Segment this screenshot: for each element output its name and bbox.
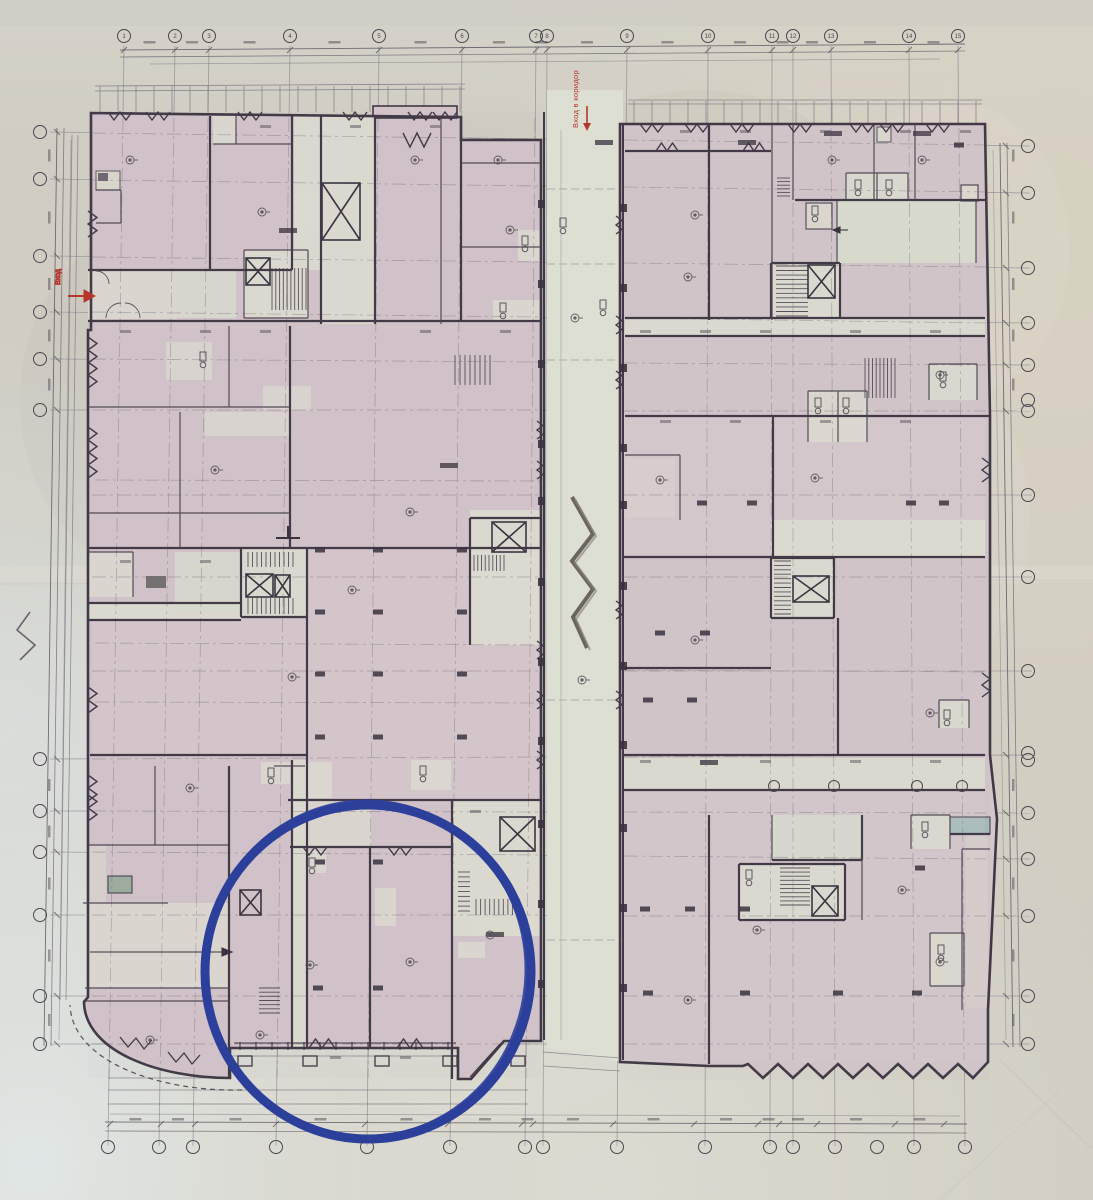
svg-text:Вход в коридор: Вход в коридор <box>571 70 580 128</box>
svg-text:13: 13 <box>828 34 835 40</box>
svg-text:15: 15 <box>955 34 962 40</box>
svg-text:12: 12 <box>790 34 797 40</box>
svg-text:11: 11 <box>769 34 776 40</box>
svg-text:Вход: Вход <box>55 269 62 285</box>
svg-text:10: 10 <box>705 34 712 40</box>
svg-text:14: 14 <box>906 34 913 40</box>
